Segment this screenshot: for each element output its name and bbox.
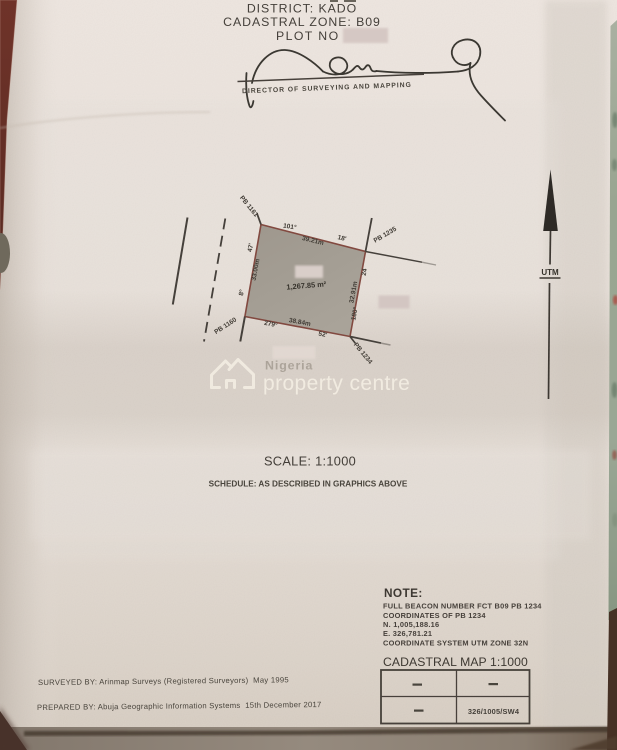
svg-text:47': 47' [247, 242, 256, 252]
svg-text:COORDINATES OF PB 1234: COORDINATES OF PB 1234 [383, 611, 486, 620]
svg-text:COORDINATE SYSTEM UTM ZONE 32N: COORDINATE SYSTEM UTM ZONE 32N [383, 638, 528, 647]
svg-text:CADASTRAL ZONE: B09: CADASTRAL ZONE: B09 [223, 15, 381, 29]
svg-text:SURVEYED BY: Arinmap Surveys (: SURVEYED BY: Arinmap Surveys (Registered… [38, 675, 289, 687]
svg-text:FULL BEACON NUMBER FCT B09 PB: FULL BEACON NUMBER FCT B09 PB 1234 [383, 602, 542, 611]
svg-text:PB 1160: PB 1160 [213, 316, 238, 336]
svg-text:E. 326,781.21: E. 326,781.21 [383, 629, 432, 638]
svg-text:UTM: UTM [541, 268, 559, 277]
svg-text:SCALE: 1:1000: SCALE: 1:1000 [264, 454, 356, 469]
svg-text:PREPARED BY: Abuja Geographic: PREPARED BY: Abuja Geographic Informatio… [37, 700, 322, 712]
svg-text:DIRECTOR OF SURVEYING AND MAPP: DIRECTOR OF SURVEYING AND MAPPING [242, 82, 412, 96]
svg-text:PB 1234: PB 1234 [352, 342, 374, 366]
svg-text:326/1005/SW4: 326/1005/SW4 [468, 707, 520, 716]
svg-text:SCHEDULE: AS DESCRIBED IN GRAP: SCHEDULE: AS DESCRIBED IN GRAPHICS ABOVE [209, 480, 408, 489]
svg-text:PB 1161: PB 1161 [238, 195, 259, 219]
svg-text:CADASTRAL MAP 1:1000: CADASTRAL MAP 1:1000 [383, 655, 528, 669]
svg-text:property centre: property centre [263, 372, 410, 395]
svg-text:8°: 8° [237, 288, 246, 296]
svg-text:52': 52' [318, 331, 328, 340]
svg-text:PB 1235: PB 1235 [373, 226, 399, 245]
svg-text:24: 24 [361, 268, 369, 277]
svg-text:Nigeria: Nigeria [265, 359, 313, 373]
svg-text:18': 18' [337, 234, 348, 243]
svg-text:PLOT NO: PLOT NO [276, 29, 340, 43]
svg-text:N. 1,005,188.16: N. 1,005,188.16 [383, 620, 439, 629]
svg-text:NOTE:: NOTE: [384, 586, 423, 600]
svg-text:DISTRICT: KADO: DISTRICT: KADO [247, 2, 357, 16]
